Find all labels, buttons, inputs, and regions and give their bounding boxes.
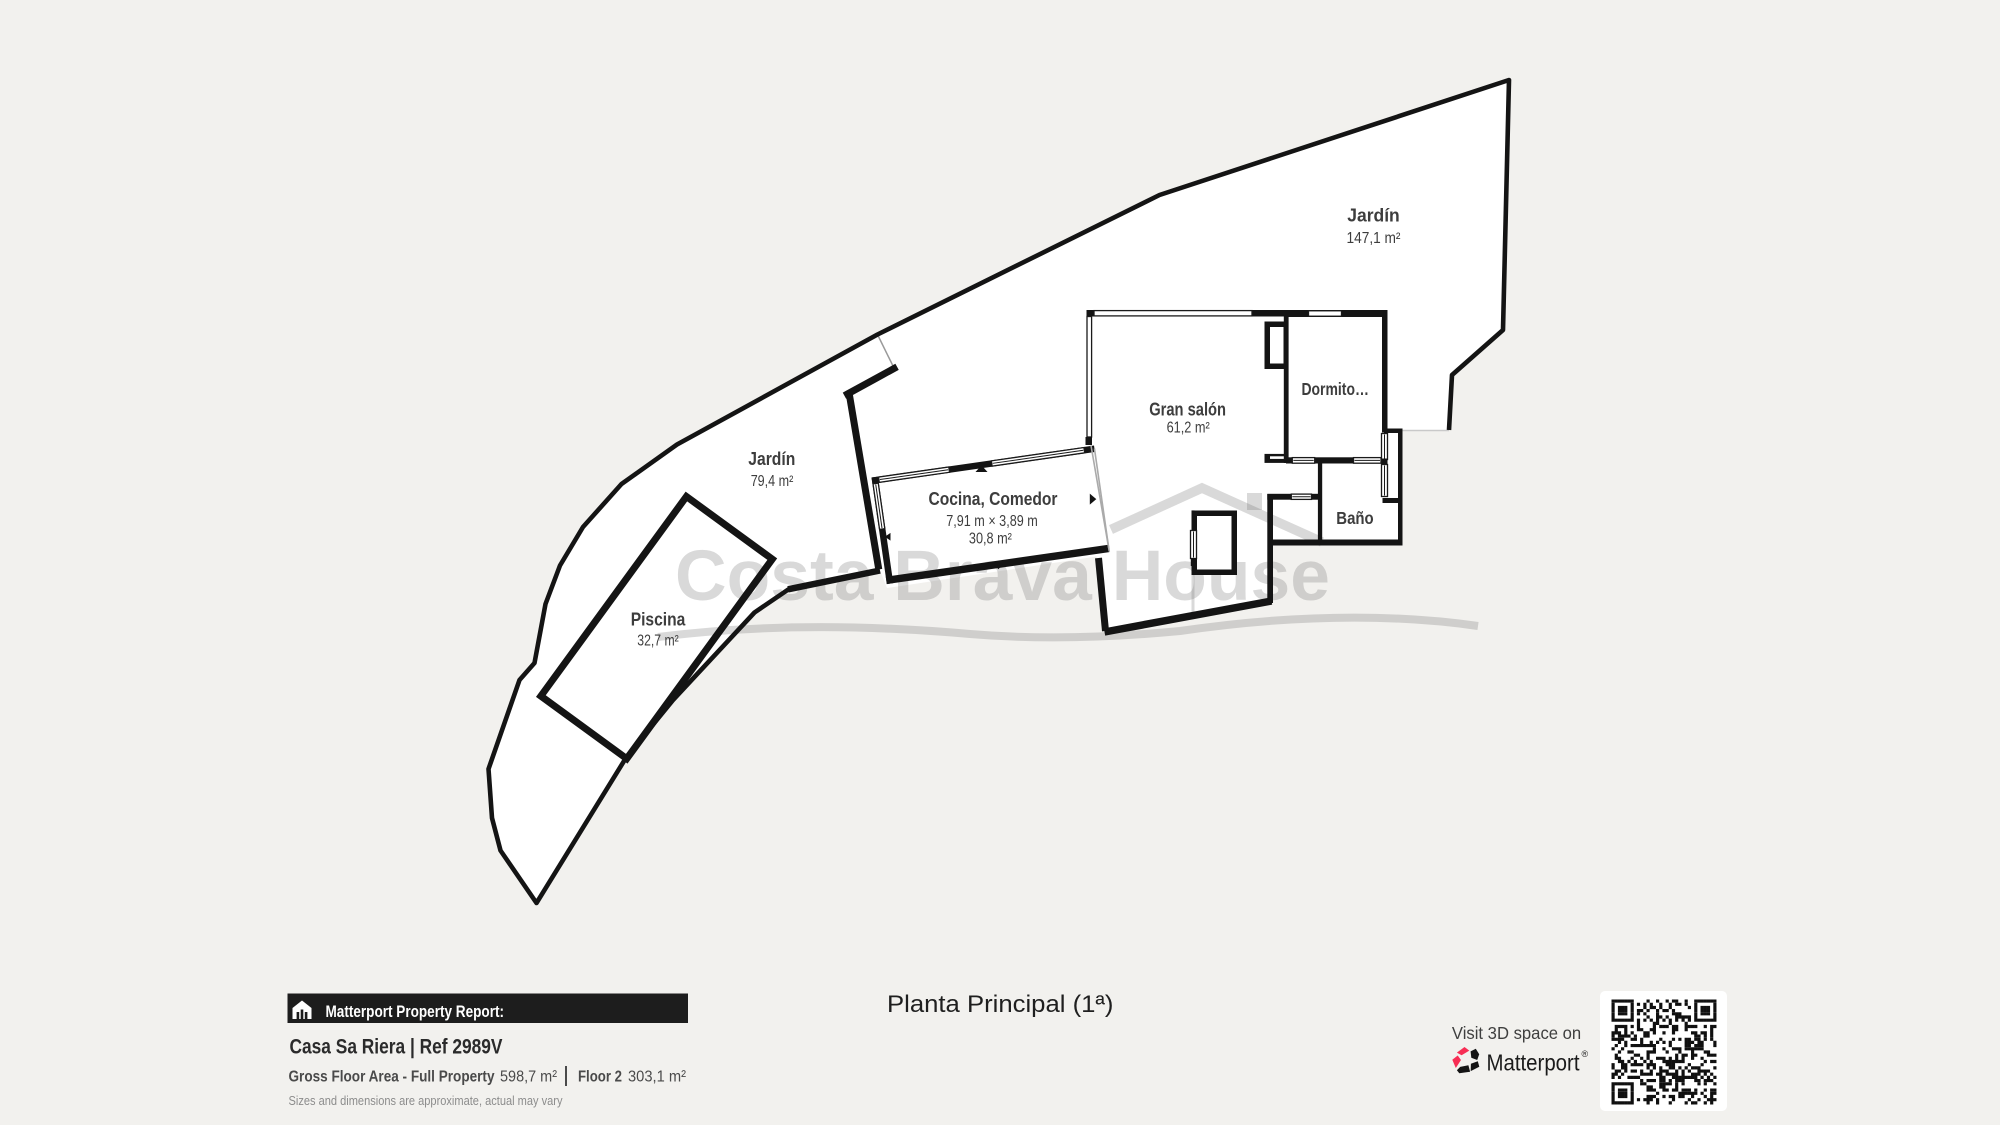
svg-text:Matterport Property Report:: Matterport Property Report: [326, 1003, 505, 1021]
svg-text:Jardín: Jardín [1347, 205, 1400, 226]
svg-text:32,7 m²: 32,7 m² [637, 633, 678, 650]
svg-text:Floor 2: Floor 2 [578, 1069, 622, 1086]
svg-text:Visit 3D space on: Visit 3D space on [1452, 1023, 1581, 1043]
svg-text:Gran salón: Gran salón [1149, 399, 1226, 420]
svg-text:Cocina, Comedor: Cocina, Comedor [929, 488, 1058, 509]
svg-text:79,4 m²: 79,4 m² [751, 473, 794, 490]
svg-text:Jardín: Jardín [748, 448, 795, 469]
svg-text:Planta Principal (1ª): Planta Principal (1ª) [887, 991, 1114, 1018]
svg-text:598,7 m²: 598,7 m² [500, 1069, 558, 1086]
svg-text:Matterport: Matterport [1487, 1050, 1581, 1076]
svg-text:Casa Sa Riera | Ref 2989V: Casa Sa Riera | Ref 2989V [290, 1036, 503, 1059]
svg-text:Sizes and dimensions are appro: Sizes and dimensions are approximate, ac… [289, 1093, 563, 1108]
svg-text:147,1 m²: 147,1 m² [1347, 230, 1401, 247]
svg-text:7,91 m × 3,89 m: 7,91 m × 3,89 m [946, 513, 1038, 530]
svg-text:303,1 m²: 303,1 m² [628, 1069, 687, 1086]
svg-text:Dormito…: Dormito… [1301, 379, 1369, 399]
svg-text:Piscina: Piscina [631, 609, 686, 630]
svg-text:61,2 m²: 61,2 m² [1167, 420, 1210, 437]
svg-text:30,8 m²: 30,8 m² [969, 530, 1012, 547]
svg-text:®: ® [1582, 1049, 1589, 1059]
svg-text:Gross Floor Area - Full Proper: Gross Floor Area - Full Property [289, 1069, 495, 1086]
svg-text:Baño: Baño [1336, 508, 1374, 528]
